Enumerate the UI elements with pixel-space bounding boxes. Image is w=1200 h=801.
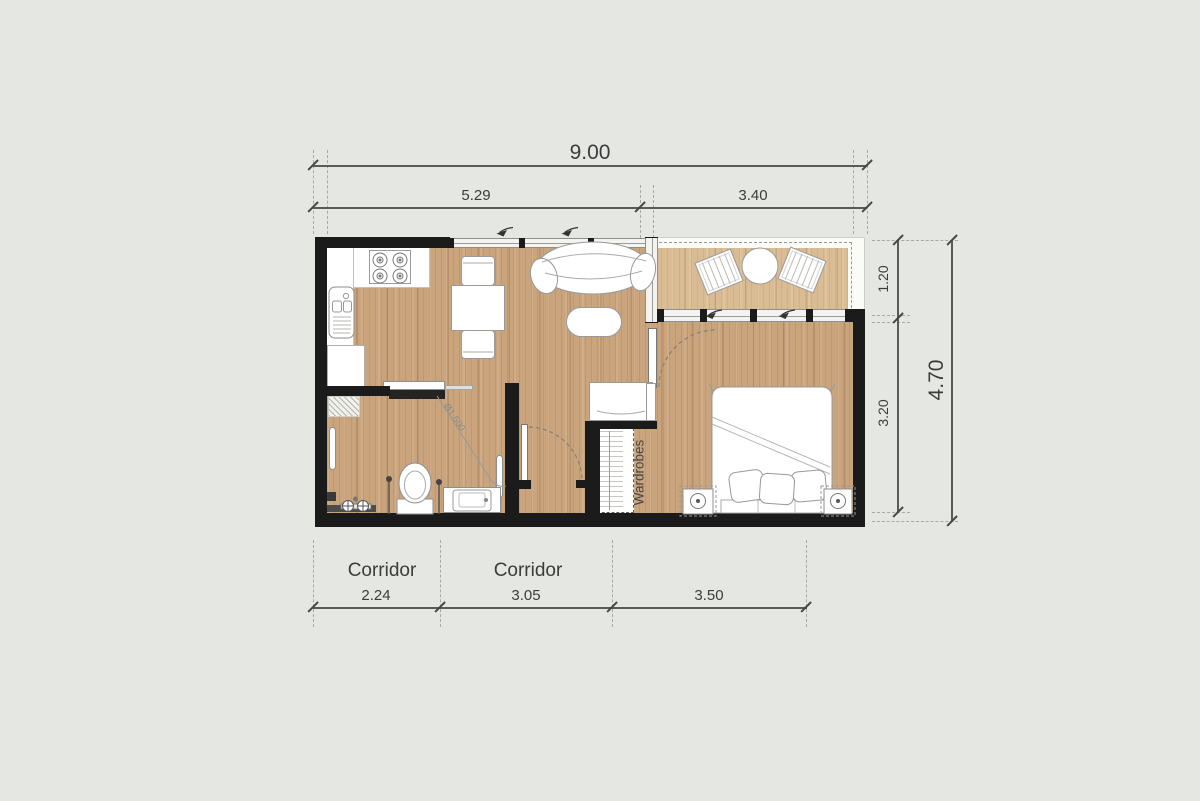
turning-circle-line	[437, 396, 506, 486]
bedroom-door-swing	[659, 330, 716, 387]
console-front-curve	[597, 411, 645, 414]
sofa	[526, 242, 659, 297]
bed	[709, 384, 835, 513]
nightstand-right	[821, 486, 855, 516]
terrace-chair-right	[778, 247, 826, 293]
floor-plan-canvas: 9.00 5.29 3.40 1.20 3.20 4.70 2.24 3.05 …	[0, 0, 1200, 801]
terrace-chair-left	[695, 249, 743, 295]
vanity-basin-icon	[453, 490, 491, 511]
dining-chair-lines	[463, 263, 493, 352]
shower-mixer-icon	[341, 497, 371, 512]
toilet	[397, 463, 433, 514]
kitchen-sink-icon	[329, 287, 354, 338]
corridor-door-swing	[529, 427, 582, 480]
furniture-overlay	[0, 0, 1200, 801]
terrace-table	[742, 248, 778, 284]
stove-burners-icon	[373, 253, 407, 283]
nightstand-left	[680, 486, 716, 516]
